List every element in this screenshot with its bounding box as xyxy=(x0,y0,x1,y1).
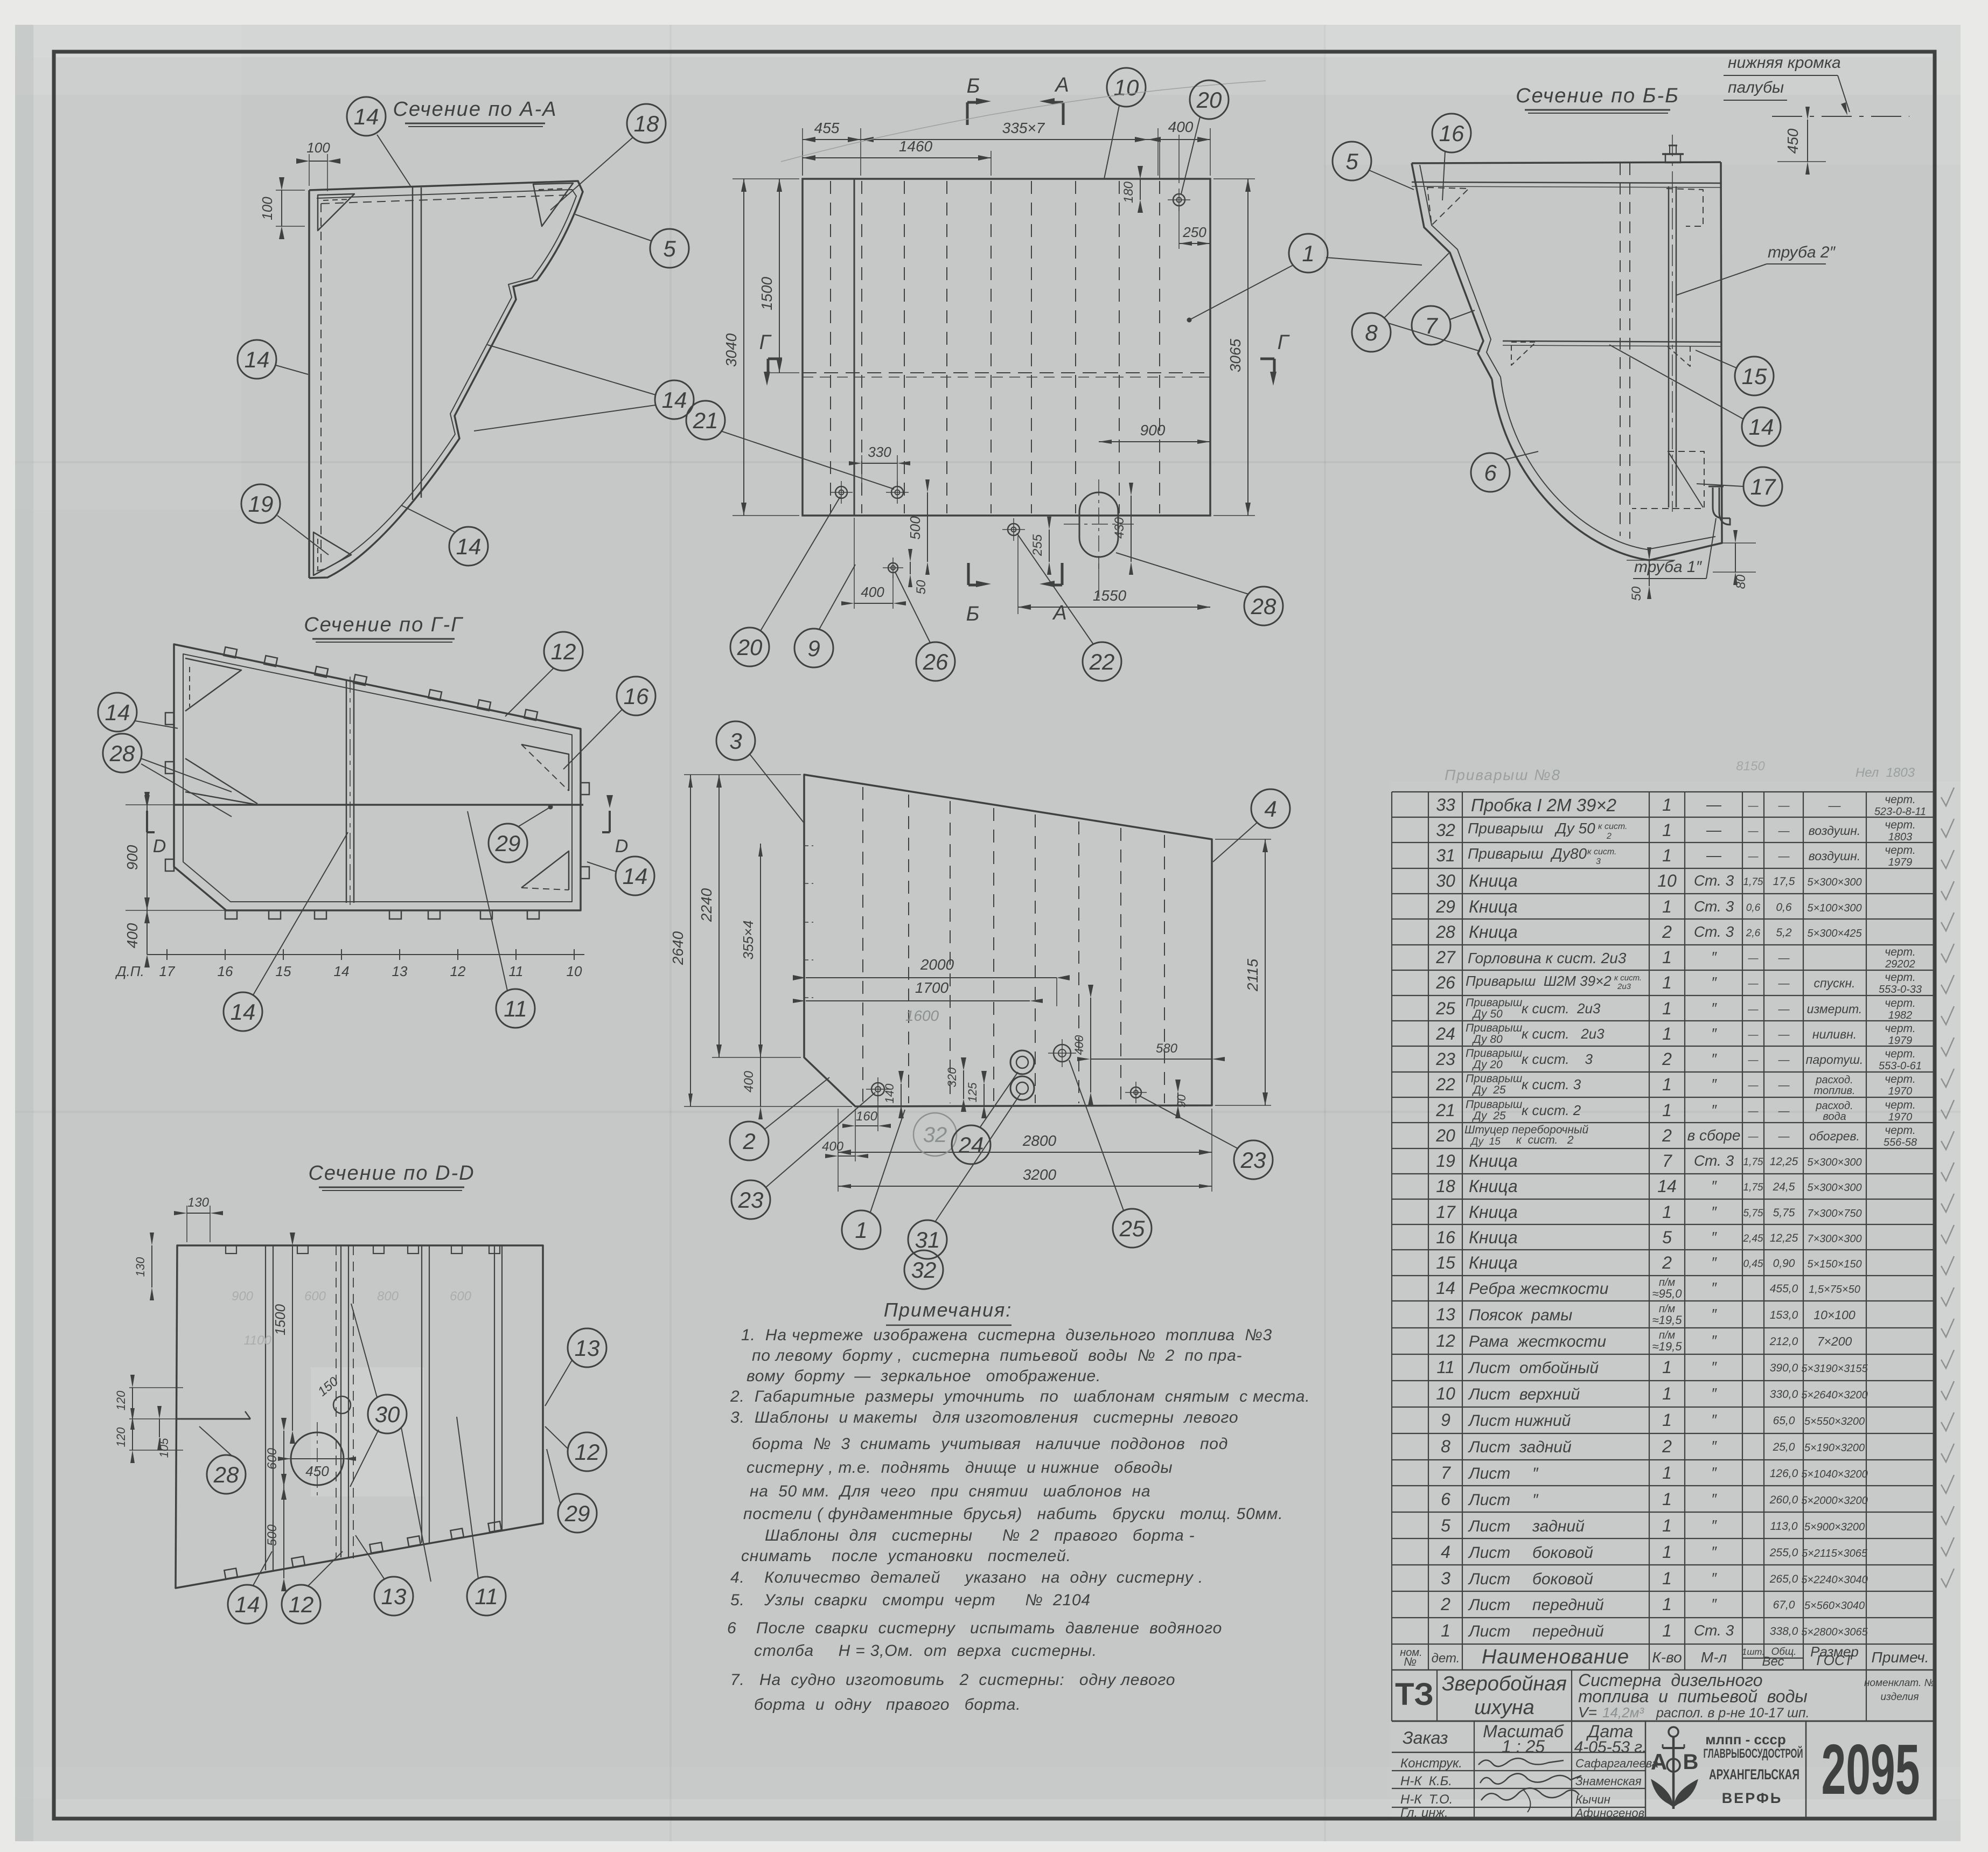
svg-text:снимать после установки: снимать после установки постелей. xyxy=(741,1547,1071,1565)
svg-text:—: — xyxy=(1778,850,1790,862)
svg-text:измерит.: измерит. xyxy=(1807,1002,1863,1016)
svg-text:553-0-61: 553-0-61 xyxy=(1879,1060,1922,1072)
svg-text:Конструк.: Конструк. xyxy=(1400,1756,1462,1771)
svg-text:5×3190×3155: 5×3190×3155 xyxy=(1801,1363,1868,1375)
svg-text:1: 1 xyxy=(1662,1410,1672,1430)
svg-text:Приварыш Ду 50: Приварыш Ду 50 xyxy=(1468,820,1595,837)
svg-text:Лист отбойный: Лист отбойный xyxy=(1468,1359,1599,1377)
svg-text:2: 2 xyxy=(1606,832,1612,841)
svg-text:8150: 8150 xyxy=(1736,759,1765,774)
svg-text:—: — xyxy=(1778,1003,1790,1015)
svg-text:80: 80 xyxy=(1734,574,1748,589)
svg-text:≈19,5: ≈19,5 xyxy=(1652,1340,1683,1353)
svg-text:400: 400 xyxy=(1072,1035,1086,1055)
svg-text:1: 1 xyxy=(1662,1542,1672,1562)
svg-text:постели ( фундаментные брусья: постели ( фундаментные брусья) набить бр… xyxy=(743,1505,1283,1523)
svg-text:обогрев.: обогрев. xyxy=(1809,1129,1860,1143)
svg-text:1: 1 xyxy=(1662,1384,1672,1403)
svg-text:черт.: черт. xyxy=(1885,946,1915,958)
svg-text:1: 1 xyxy=(1662,1024,1672,1043)
svg-text:10×100: 10×100 xyxy=(1813,1308,1856,1322)
svg-text:1,75: 1,75 xyxy=(1743,1182,1763,1193)
svg-text:7. На судно изготовить 2: 7. На судно изготовить 2 систерны: одну … xyxy=(730,1671,1175,1689)
svg-text:Приварыш: Приварыш xyxy=(1466,1047,1523,1060)
svg-text:Приварыш: Приварыш xyxy=(1466,1022,1523,1034)
svg-text:14: 14 xyxy=(623,864,648,889)
svg-text:5×1040×3200: 5×1040×3200 xyxy=(1801,1468,1867,1480)
svg-text:столба Н = 3,Ом. от верх: столба Н = 3,Ом. от верха систерны. xyxy=(754,1642,1097,1660)
svg-text:21: 21 xyxy=(1435,1101,1455,1120)
svg-text:553-0-33: 553-0-33 xyxy=(1879,984,1922,995)
svg-text:500: 500 xyxy=(265,1524,280,1546)
svg-text:топлив.: топлив. xyxy=(1814,1085,1856,1097)
svg-text:Ду 20: Ду 20 xyxy=(1472,1059,1503,1071)
svg-text:Пробка I 2М 39×2: Пробка I 2М 39×2 xyxy=(1471,795,1616,815)
svg-text:8: 8 xyxy=(1441,1437,1450,1456)
svg-text:нижняя кромка: нижняя кромка xyxy=(1728,54,1841,72)
svg-text:к сист. 3: к сист. 3 xyxy=(1522,1051,1593,1067)
svg-text:5,2: 5,2 xyxy=(1776,927,1792,939)
svg-text:″: ″ xyxy=(1711,1203,1717,1220)
svg-text:24: 24 xyxy=(958,1132,984,1158)
svg-text:14: 14 xyxy=(1749,414,1774,440)
svg-text:5×100×300: 5×100×300 xyxy=(1807,902,1861,914)
svg-text:ниливн.: ниливн. xyxy=(1812,1027,1857,1041)
svg-text:—: — xyxy=(1748,1055,1759,1066)
svg-text:А: А xyxy=(1052,602,1066,624)
svg-text:—: — xyxy=(1828,798,1841,812)
svg-text:″: ″ xyxy=(1532,1465,1539,1482)
svg-text:11: 11 xyxy=(1436,1357,1454,1377)
svg-text:2: 2 xyxy=(1440,1595,1450,1614)
svg-text:Афиногенов: Афиногенов xyxy=(1574,1806,1644,1820)
svg-text:расход.: расход. xyxy=(1815,1100,1853,1112)
svg-text:черт.: черт. xyxy=(1885,997,1915,1009)
svg-text:24,5: 24,5 xyxy=(1773,1181,1795,1193)
svg-text:26: 26 xyxy=(923,649,948,674)
svg-text:0,6: 0,6 xyxy=(1776,901,1792,914)
svg-text:черт.: черт. xyxy=(1885,971,1915,984)
svg-text:вому борту — зеркальное о: вому борту — зеркальное отображение. xyxy=(747,1367,1101,1385)
svg-text:9: 9 xyxy=(1441,1410,1450,1430)
svg-text:32: 32 xyxy=(923,1123,947,1147)
svg-text:—: — xyxy=(1748,953,1759,964)
svg-text:—: — xyxy=(1748,1004,1759,1015)
svg-text:1: 1 xyxy=(855,1217,867,1243)
svg-text:4. Количество деталей: 4. Количество деталей указано на одну си… xyxy=(730,1569,1203,1586)
svg-text:5×560×3040: 5×560×3040 xyxy=(1804,1600,1865,1612)
svg-text:2: 2 xyxy=(1662,922,1672,942)
svg-text:передний: передний xyxy=(1532,1596,1604,1614)
svg-text:5×550×3200: 5×550×3200 xyxy=(1804,1416,1865,1428)
svg-text:28: 28 xyxy=(1435,922,1455,942)
svg-text:Ду 80: Ду 80 xyxy=(1472,1033,1503,1046)
svg-text:15: 15 xyxy=(1742,364,1767,389)
svg-text:18: 18 xyxy=(634,111,659,136)
svg-text:5. Узлы сварки смотри ч: 5. Узлы сварки смотри черт № 2104 xyxy=(730,1591,1091,1609)
svg-text:№: № xyxy=(1404,1655,1417,1668)
svg-text:по левому борту , систерна: по левому борту , систерна питьевой воды… xyxy=(752,1347,1242,1364)
svg-text:10: 10 xyxy=(1657,871,1677,890)
svg-text:3: 3 xyxy=(1441,1569,1450,1588)
svg-text:1: 1 xyxy=(1662,1463,1672,1482)
svg-text:—: — xyxy=(1706,847,1722,864)
svg-text:″: ″ xyxy=(1711,949,1717,965)
svg-text:″: ″ xyxy=(1711,1543,1717,1560)
svg-text:распол. в р-не 10-17 шп.: распол. в р-не 10-17 шп. xyxy=(1656,1705,1810,1721)
svg-text:1: 1 xyxy=(1662,1516,1672,1535)
svg-text:Н-К К.Б.: Н-К К.Б. xyxy=(1400,1774,1452,1788)
svg-text:7×300×750: 7×300×750 xyxy=(1807,1208,1861,1220)
svg-text:Лист: Лист xyxy=(1468,1491,1510,1509)
svg-text:″: ″ xyxy=(1711,1464,1717,1481)
svg-text:1550: 1550 xyxy=(1093,587,1127,604)
svg-text:212,0: 212,0 xyxy=(1769,1335,1798,1348)
svg-text:19: 19 xyxy=(248,491,274,517)
svg-text:Г: Г xyxy=(759,331,772,354)
svg-text:Лист: Лист xyxy=(1468,1596,1510,1614)
svg-text:1982: 1982 xyxy=(1888,1009,1913,1021)
svg-text:8: 8 xyxy=(1365,320,1378,345)
svg-text:Заказ: Заказ xyxy=(1403,1728,1448,1747)
svg-text:D: D xyxy=(615,836,629,857)
svg-text:—: — xyxy=(1748,1106,1759,1117)
svg-text:5,75: 5,75 xyxy=(1743,1208,1763,1219)
svg-text:боковой: боковой xyxy=(1532,1544,1593,1562)
svg-text:523-0-8-11: 523-0-8-11 xyxy=(1874,806,1926,818)
svg-text:″: ″ xyxy=(1711,1438,1717,1454)
svg-text:″: ″ xyxy=(1711,1178,1717,1194)
svg-text:5×300×300: 5×300×300 xyxy=(1807,1157,1861,1168)
svg-text:28: 28 xyxy=(109,741,135,766)
svg-text:черт.: черт. xyxy=(1885,793,1915,806)
svg-text:390,0: 390,0 xyxy=(1770,1362,1798,1374)
svg-text:19: 19 xyxy=(1436,1151,1455,1171)
svg-text:—: — xyxy=(1778,977,1790,990)
svg-text:15: 15 xyxy=(1436,1253,1455,1272)
svg-text:задний: задний xyxy=(1532,1517,1585,1535)
svg-text:черт.: черт. xyxy=(1885,1048,1915,1060)
svg-text:—: — xyxy=(1748,1029,1759,1041)
svg-text:Ребра жесткости: Ребра жесткости xyxy=(1469,1280,1609,1298)
svg-text:А: А xyxy=(1054,74,1069,96)
svg-text:Д.П.: Д.П. xyxy=(115,963,144,979)
svg-text:″: ″ xyxy=(1711,1000,1717,1016)
svg-text:Ст. 3: Ст. 3 xyxy=(1694,898,1734,915)
svg-text:10: 10 xyxy=(567,963,582,979)
svg-text:″: ″ xyxy=(1711,1102,1717,1118)
svg-text:14: 14 xyxy=(105,700,130,725)
svg-text:5×190×3200: 5×190×3200 xyxy=(1804,1442,1865,1454)
svg-text:15: 15 xyxy=(276,963,291,979)
svg-text:2,6: 2,6 xyxy=(1746,928,1761,939)
svg-text:1,5×75×50: 1,5×75×50 xyxy=(1809,1284,1860,1296)
svg-text:≈19,5: ≈19,5 xyxy=(1652,1313,1683,1327)
svg-text:1: 1 xyxy=(1302,241,1314,266)
svg-text:5×2000×3200: 5×2000×3200 xyxy=(1801,1495,1867,1507)
svg-text:—: — xyxy=(1778,952,1790,964)
svg-text:10: 10 xyxy=(1436,1384,1455,1403)
svg-text:125: 125 xyxy=(966,1082,979,1102)
svg-text:Сечение по А-А: Сечение по А-А xyxy=(393,98,557,121)
svg-text:5×900×3200: 5×900×3200 xyxy=(1804,1521,1865,1533)
svg-text:Сафаргалеева: Сафаргалеева xyxy=(1575,1757,1658,1770)
svg-text:5×2115×3065: 5×2115×3065 xyxy=(1802,1548,1868,1559)
svg-text:17: 17 xyxy=(1436,1202,1456,1222)
svg-text:16: 16 xyxy=(1436,1228,1455,1247)
svg-text:29: 29 xyxy=(564,1501,590,1526)
svg-text:Кница: Кница xyxy=(1469,922,1518,942)
svg-text:3: 3 xyxy=(729,728,742,754)
svg-text:—: — xyxy=(1778,1130,1790,1143)
svg-text:4-05-53 г.: 4-05-53 г. xyxy=(1574,1738,1647,1756)
svg-text:9: 9 xyxy=(807,636,820,661)
svg-text:Лист: Лист xyxy=(1468,1623,1510,1640)
svg-text:черт.: черт. xyxy=(1885,1124,1915,1137)
svg-text:Примеч.: Примеч. xyxy=(1872,1649,1929,1666)
svg-text:Кница: Кница xyxy=(1469,1228,1518,1247)
svg-text:Кница: Кница xyxy=(1469,1202,1518,1222)
svg-text:400: 400 xyxy=(124,923,141,948)
svg-text:1970: 1970 xyxy=(1888,1111,1913,1123)
svg-text:″: ″ xyxy=(1711,1570,1717,1586)
svg-text:29: 29 xyxy=(1435,897,1455,916)
svg-text:5×2640×3200: 5×2640×3200 xyxy=(1801,1389,1867,1401)
svg-text:Б: Б xyxy=(966,603,980,625)
svg-text:″: ″ xyxy=(1711,1306,1717,1322)
svg-text:29: 29 xyxy=(495,831,521,856)
svg-text:17,5: 17,5 xyxy=(1773,875,1795,888)
svg-text:Сечение по Г-Г: Сечение по Г-Г xyxy=(304,614,464,636)
svg-text:12: 12 xyxy=(575,1439,600,1465)
svg-text:ТЗ: ТЗ xyxy=(1395,1677,1434,1712)
svg-text:16: 16 xyxy=(624,684,649,709)
svg-text:Нел 1803: Нел 1803 xyxy=(1856,765,1915,780)
svg-text:Кница: Кница xyxy=(1469,1151,1518,1171)
svg-text:7×200: 7×200 xyxy=(1817,1334,1852,1348)
svg-text:≈95,0: ≈95,0 xyxy=(1652,1287,1683,1300)
svg-text:23: 23 xyxy=(1435,1049,1455,1069)
svg-text:5×300×300: 5×300×300 xyxy=(1807,876,1861,888)
svg-text:33: 33 xyxy=(1436,795,1455,814)
svg-text:12: 12 xyxy=(450,963,466,979)
svg-text:7×300×300: 7×300×300 xyxy=(1807,1233,1861,1245)
svg-text:14: 14 xyxy=(235,1592,260,1617)
svg-text:330: 330 xyxy=(868,444,891,460)
svg-text:11: 11 xyxy=(504,996,527,1021)
svg-text:Приварыш: Приварыш xyxy=(1466,997,1523,1009)
svg-text:2115: 2115 xyxy=(1244,958,1261,992)
svg-text:0,90: 0,90 xyxy=(1773,1257,1795,1270)
svg-text:2800: 2800 xyxy=(1022,1132,1057,1149)
svg-text:черт.: черт. xyxy=(1885,819,1915,831)
svg-text:500: 500 xyxy=(907,516,923,540)
svg-text:черт.: черт. xyxy=(1885,844,1915,857)
svg-text:″: ″ xyxy=(1711,1359,1717,1375)
svg-text:Шаблоны для систерны №: Шаблоны для систерны № 2 правого борта - xyxy=(765,1527,1195,1544)
svg-text:400: 400 xyxy=(822,1139,844,1154)
svg-text:Лист: Лист xyxy=(1468,1570,1510,1588)
svg-text:16: 16 xyxy=(1439,121,1464,146)
svg-text:400: 400 xyxy=(1168,119,1194,135)
svg-text:5×300×300: 5×300×300 xyxy=(1807,1182,1861,1194)
svg-text:Ду 25: Ду 25 xyxy=(1472,1110,1506,1122)
svg-text:Приварыш: Приварыш xyxy=(1466,1073,1523,1085)
svg-text:4: 4 xyxy=(1264,796,1276,821)
svg-text:Приварыш Ду80: Приварыш Ду80 xyxy=(1468,845,1587,862)
svg-text:1: 1 xyxy=(1662,1489,1672,1509)
svg-text:4: 4 xyxy=(1441,1542,1450,1562)
svg-text:Горловина к сист. 2и3: Горловина к сист. 2и3 xyxy=(1468,950,1627,966)
svg-text:50: 50 xyxy=(914,580,929,594)
svg-text:2240: 2240 xyxy=(698,888,715,922)
svg-text:17: 17 xyxy=(1750,474,1776,499)
svg-text:3: 3 xyxy=(1596,857,1601,866)
svg-text:на 50 мм. Для чего при с: на 50 мм. Для чего при снятии шаблонов н… xyxy=(750,1482,1150,1500)
svg-text:14: 14 xyxy=(1657,1176,1677,1196)
svg-text:14: 14 xyxy=(334,963,350,979)
svg-text:к сист. 2и3: к сист. 2и3 xyxy=(1522,1026,1605,1042)
svg-text:борта и одну правого бор: борта и одну правого борта. xyxy=(754,1696,1021,1714)
svg-text:120: 120 xyxy=(114,1390,128,1410)
svg-text:передний: передний xyxy=(1532,1623,1604,1640)
svg-text:6: 6 xyxy=(1484,460,1497,485)
svg-text:2: 2 xyxy=(1662,1049,1672,1069)
svg-text:″: ″ xyxy=(1711,1491,1717,1507)
svg-text:90: 90 xyxy=(1175,1094,1188,1108)
svg-text:25: 25 xyxy=(1435,999,1455,1018)
svg-text:1: 1 xyxy=(1662,820,1672,840)
svg-text:1: 1 xyxy=(1662,897,1672,916)
svg-text:к сист.: к сист. xyxy=(1598,822,1628,831)
svg-text:Приварыш №8: Приварыш №8 xyxy=(1445,767,1561,783)
svg-text:Кычин: Кычин xyxy=(1575,1793,1610,1806)
svg-text:50: 50 xyxy=(1629,586,1644,601)
svg-text:Вес: Вес xyxy=(1762,1654,1784,1669)
svg-text:″: ″ xyxy=(1711,1025,1717,1042)
svg-text:14: 14 xyxy=(456,534,482,559)
svg-text:3065: 3065 xyxy=(1227,338,1244,372)
svg-text:7: 7 xyxy=(1662,1151,1672,1171)
svg-text:Б: Б xyxy=(967,75,980,98)
svg-text:млпп - ссср: млпп - ссср xyxy=(1705,1731,1786,1747)
svg-text:153,0: 153,0 xyxy=(1770,1309,1798,1321)
svg-text:338,0: 338,0 xyxy=(1770,1625,1798,1638)
svg-text:17: 17 xyxy=(159,963,176,979)
svg-text:355×4: 355×4 xyxy=(740,920,756,959)
svg-text:450: 450 xyxy=(1784,128,1801,154)
svg-text:14,2м³: 14,2м³ xyxy=(1602,1704,1644,1721)
svg-text:1100: 1100 xyxy=(243,1333,271,1348)
svg-text:″: ″ xyxy=(1711,1332,1717,1349)
svg-text:Сечение по Б-Б: Сечение по Б-Б xyxy=(1516,85,1679,107)
svg-text:Рама жесткости: Рама жесткости xyxy=(1469,1333,1606,1350)
svg-text:—: — xyxy=(1706,821,1722,838)
svg-text:Гл. инж.: Гл. инж. xyxy=(1400,1806,1448,1820)
svg-text:″: ″ xyxy=(1711,1596,1717,1612)
svg-text:23: 23 xyxy=(1240,1147,1266,1173)
svg-text:Ст. 3: Ст. 3 xyxy=(1694,872,1734,889)
svg-text:7: 7 xyxy=(1425,313,1438,338)
svg-text:3040: 3040 xyxy=(723,333,740,367)
svg-text:320: 320 xyxy=(945,1067,959,1087)
svg-text:26: 26 xyxy=(1435,973,1455,992)
svg-text:11: 11 xyxy=(475,1584,498,1609)
svg-text:шхуна: шхуна xyxy=(1474,1696,1534,1719)
svg-text:255: 255 xyxy=(1030,534,1045,556)
svg-text:105: 105 xyxy=(157,1438,171,1458)
svg-text:1шт.: 1шт. xyxy=(1742,1647,1764,1657)
svg-text:31: 31 xyxy=(915,1227,940,1252)
svg-text:Лист верхний: Лист верхний xyxy=(1468,1385,1580,1403)
svg-text:В: В xyxy=(1683,1750,1699,1774)
svg-text:к сист. 2: к сист. 2 xyxy=(1522,1102,1581,1118)
svg-text:400: 400 xyxy=(861,584,884,600)
svg-text:—: — xyxy=(1748,826,1759,837)
svg-text:600: 600 xyxy=(450,1289,472,1304)
svg-text:1 : 25: 1 : 25 xyxy=(1502,1737,1545,1756)
svg-text:32: 32 xyxy=(1436,820,1455,840)
svg-text:120: 120 xyxy=(114,1427,128,1447)
svg-text:1: 1 xyxy=(1662,795,1672,814)
svg-text:260,0: 260,0 xyxy=(1769,1494,1798,1506)
svg-text:5: 5 xyxy=(1441,1516,1450,1535)
svg-text:систерну , т.е. поднять дни: систерну , т.е. поднять днище и нижние о… xyxy=(747,1459,1173,1477)
svg-text:13: 13 xyxy=(392,963,408,979)
svg-text:черт.: черт. xyxy=(1885,1022,1915,1035)
svg-text:к сист.: к сист. xyxy=(1614,973,1642,983)
svg-text:5: 5 xyxy=(1662,1228,1672,1247)
svg-text:труба 2″: труба 2″ xyxy=(1768,243,1836,261)
svg-text:Лист: Лист xyxy=(1468,1544,1510,1562)
svg-text:—: — xyxy=(1778,1079,1790,1091)
svg-text:1: 1 xyxy=(1662,1075,1672,1094)
svg-text:600: 600 xyxy=(265,1447,280,1470)
svg-text:Ду 25: Ду 25 xyxy=(1472,1084,1506,1096)
svg-text:3. Шаблоны и макеты для из: 3. Шаблоны и макеты для изготовления сис… xyxy=(730,1409,1238,1426)
svg-text:2640: 2640 xyxy=(669,931,686,965)
svg-text:22: 22 xyxy=(1089,649,1115,674)
svg-text:126,0: 126,0 xyxy=(1770,1467,1798,1480)
svg-text:0,6: 0,6 xyxy=(1746,902,1761,914)
svg-text:12,25: 12,25 xyxy=(1770,1155,1798,1168)
svg-text:1: 1 xyxy=(1662,1621,1672,1640)
svg-text:12: 12 xyxy=(551,639,576,664)
svg-text:труба 1″: труба 1″ xyxy=(1634,558,1703,576)
svg-text:1: 1 xyxy=(1662,1357,1672,1377)
svg-text:″: ″ xyxy=(1711,1254,1717,1271)
svg-text:30: 30 xyxy=(1436,871,1455,890)
svg-text:12,25: 12,25 xyxy=(1770,1232,1798,1244)
svg-text:29202: 29202 xyxy=(1885,958,1915,970)
svg-text:28: 28 xyxy=(213,1462,239,1487)
svg-text:12: 12 xyxy=(289,1592,314,1617)
svg-text:Ду 15: Ду 15 xyxy=(1470,1136,1501,1147)
svg-text:1979: 1979 xyxy=(1888,857,1913,868)
svg-text:100: 100 xyxy=(259,197,275,220)
svg-text:—: — xyxy=(1778,825,1790,837)
svg-text:паротуш.: паротуш. xyxy=(1806,1053,1864,1067)
svg-text:2000: 2000 xyxy=(920,956,954,973)
svg-text:27: 27 xyxy=(1435,948,1456,967)
svg-text:1,75: 1,75 xyxy=(1743,876,1763,888)
svg-text:М-л: М-л xyxy=(1701,1649,1727,1666)
svg-text:65,0: 65,0 xyxy=(1773,1415,1795,1427)
svg-text:14: 14 xyxy=(1436,1278,1455,1298)
svg-text:воздушн.: воздушн. xyxy=(1809,824,1861,838)
svg-text:Ст. 3: Ст. 3 xyxy=(1694,1152,1734,1169)
svg-text:Ст. 3: Ст. 3 xyxy=(1694,1622,1734,1639)
